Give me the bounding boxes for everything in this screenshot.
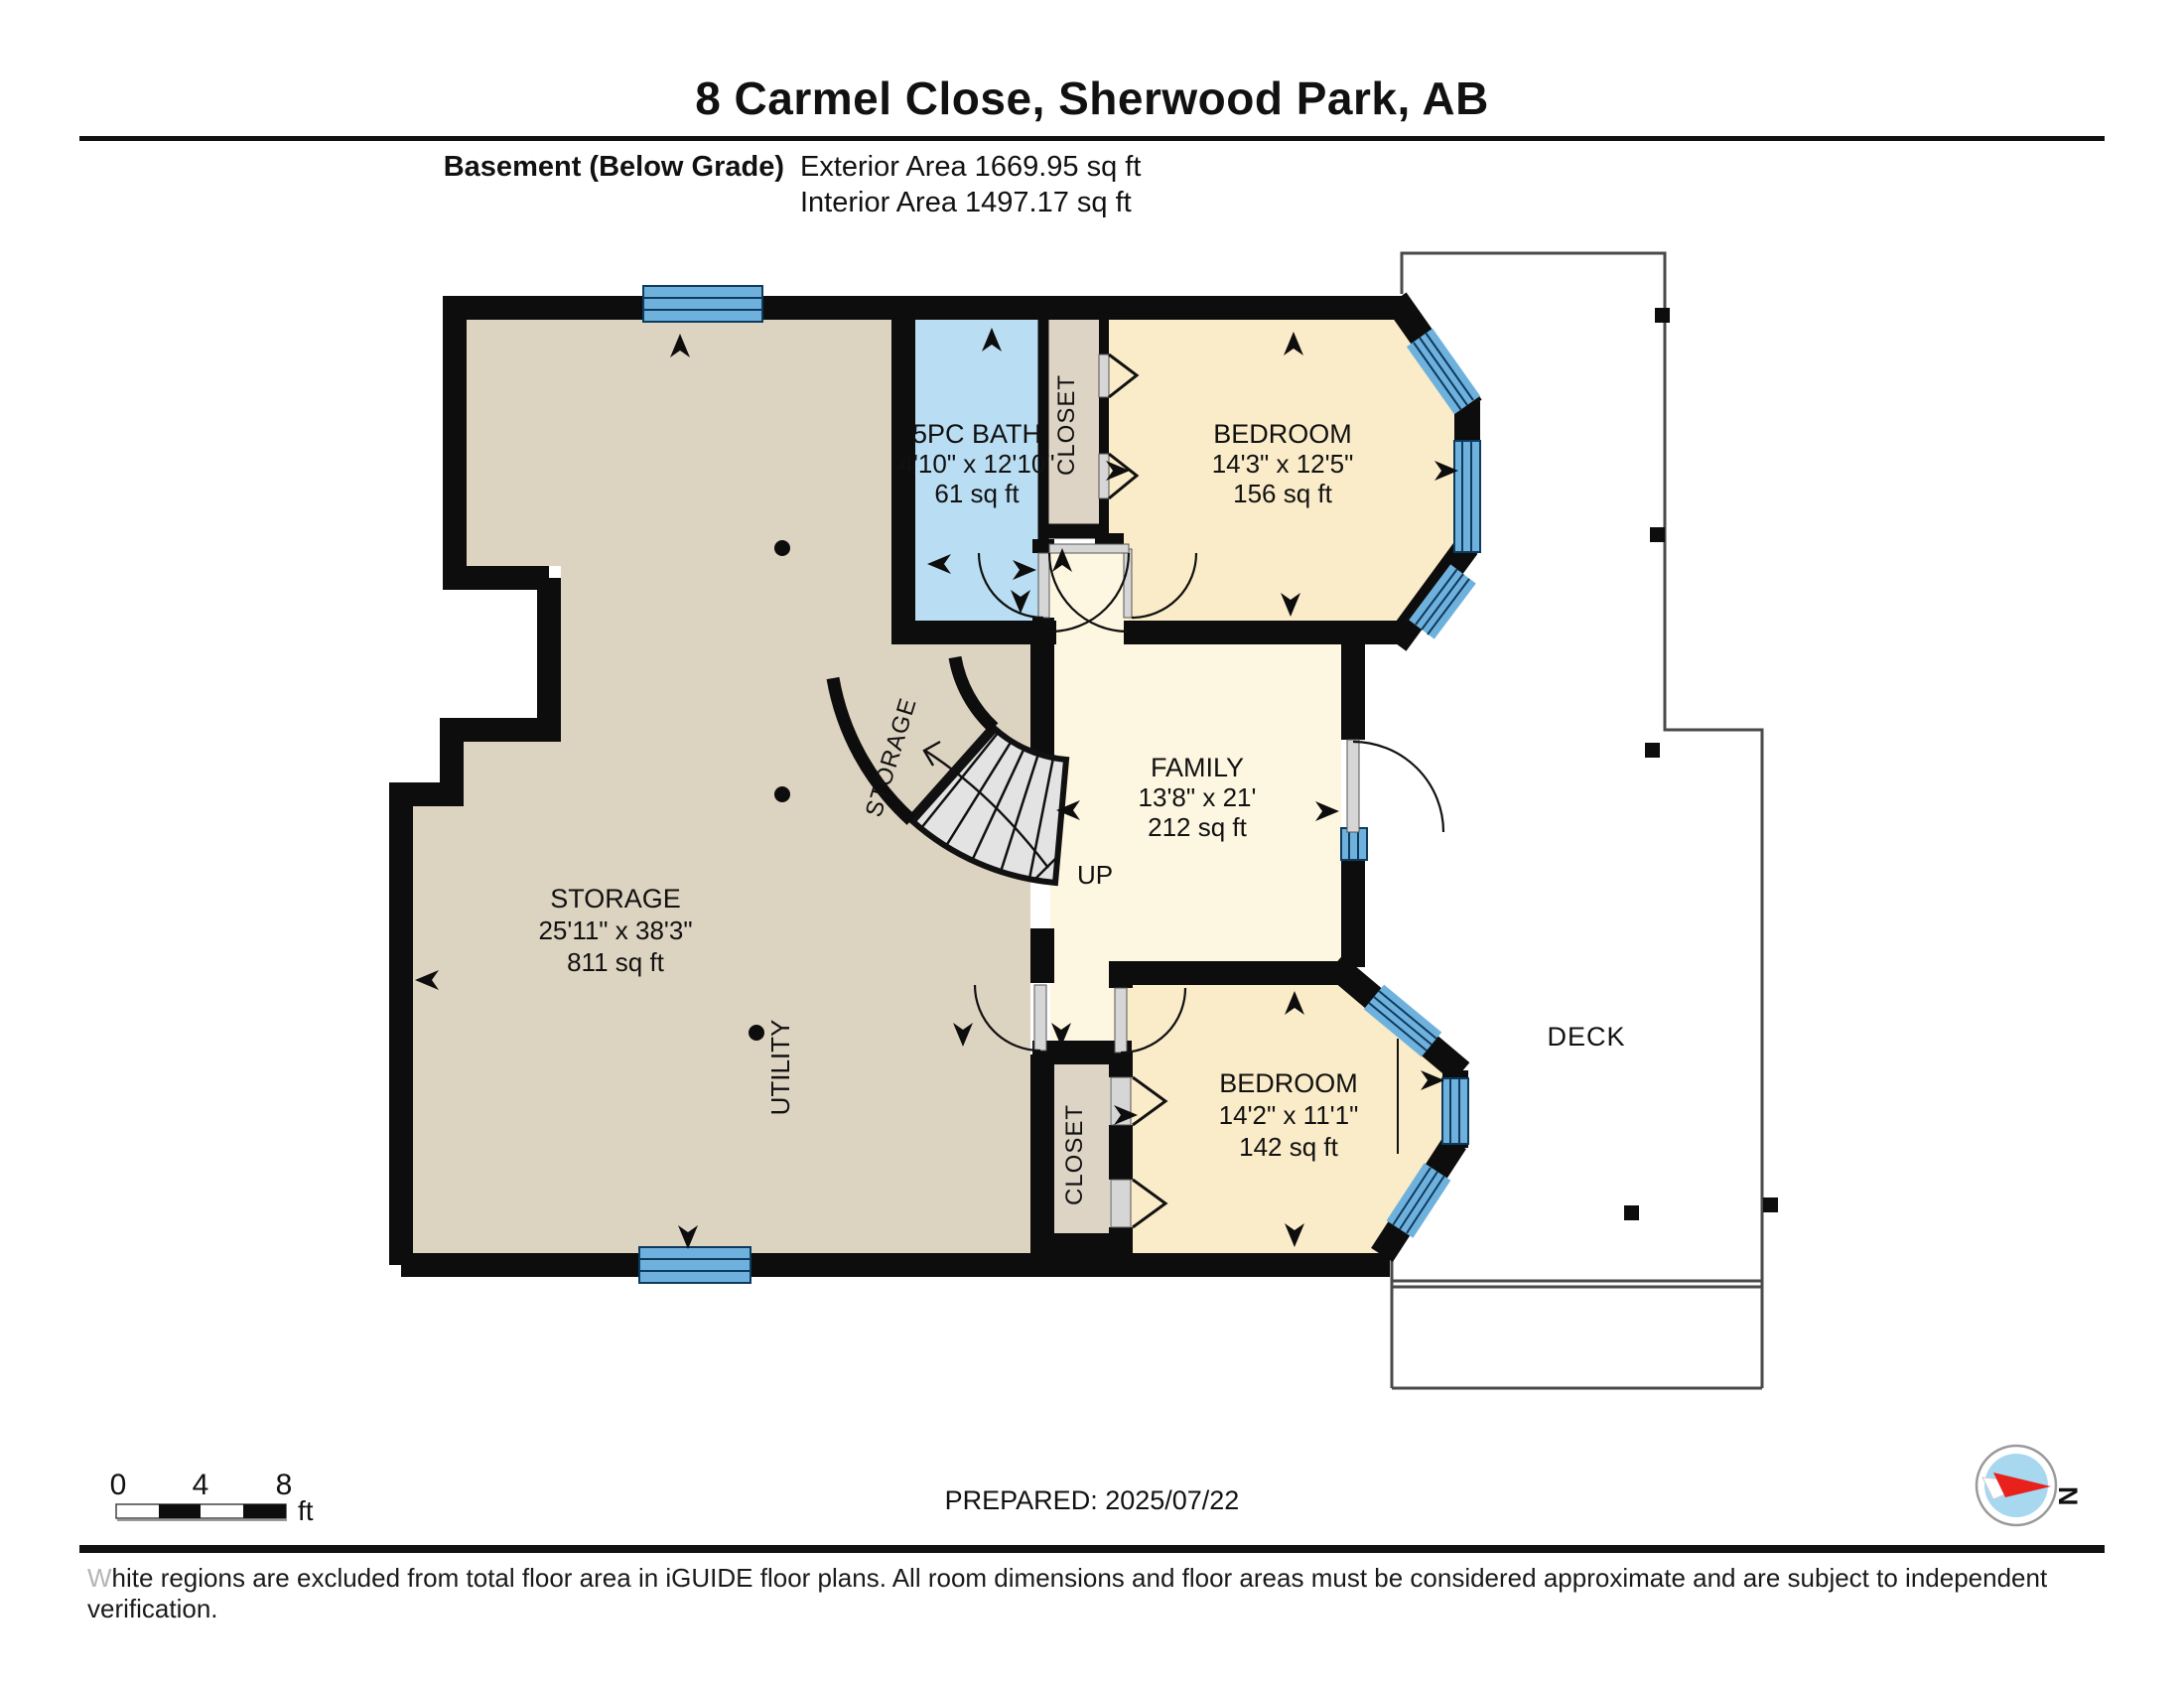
floorplan-canvas: STORAGE 25'11" x 38'3" 811 sq ft 5PC BAT…	[0, 0, 2184, 1688]
bath-room-area: 61 sq ft	[934, 479, 1020, 508]
utility-label: UTILITY	[765, 1020, 795, 1116]
storage-room-area: 811 sq ft	[567, 947, 665, 977]
floorplan-page: 8 Carmel Close, Sherwood Park, AB Baseme…	[0, 0, 2184, 1688]
prepared-date: PREPARED: 2025/07/22	[0, 1485, 2184, 1516]
bedroom-bottom-area: 142 sq ft	[1239, 1132, 1339, 1162]
storage-room-name: STORAGE	[550, 884, 681, 914]
bedroom-bottom-dims: 14'2" x 11'1"	[1219, 1100, 1359, 1130]
bedroom-top-dims: 14'3" x 12'5"	[1212, 449, 1354, 479]
family-room-area: 212 sq ft	[1148, 812, 1248, 842]
deck-posts	[1624, 308, 1778, 1220]
closet-top-label: CLOSET	[1053, 374, 1080, 476]
disclaimer-rest: hite regions are excluded from total flo…	[87, 1563, 2047, 1623]
deck-label: DECK	[1547, 1022, 1625, 1052]
window-bottom	[639, 1247, 751, 1283]
family-room-dims: 13'8" x 21'	[1139, 782, 1257, 812]
disclaimer-first-letter: W	[87, 1563, 112, 1593]
bedroom-top-area: 156 sq ft	[1233, 479, 1333, 508]
bath-room-dims: 4'10" x 12'10"	[898, 449, 1054, 479]
footer-rule	[79, 1545, 2105, 1553]
storage-room-dims: 25'11" x 38'3"	[538, 915, 692, 945]
disclaimer-text: White regions are excluded from total fl…	[87, 1563, 2152, 1624]
closet-bottom-label: CLOSET	[1061, 1104, 1088, 1205]
up-label: UP	[1077, 860, 1113, 890]
family-room-name: FAMILY	[1151, 753, 1244, 782]
window-top	[643, 286, 762, 322]
bedroom-top-name: BEDROOM	[1213, 419, 1352, 449]
bath-room-name: 5PC BATH	[912, 419, 1041, 449]
bedroom-bottom-name: BEDROOM	[1219, 1068, 1358, 1098]
window-family	[1341, 828, 1367, 860]
deck-door-arc	[1353, 742, 1443, 832]
deck-door-leaf	[1347, 740, 1359, 832]
